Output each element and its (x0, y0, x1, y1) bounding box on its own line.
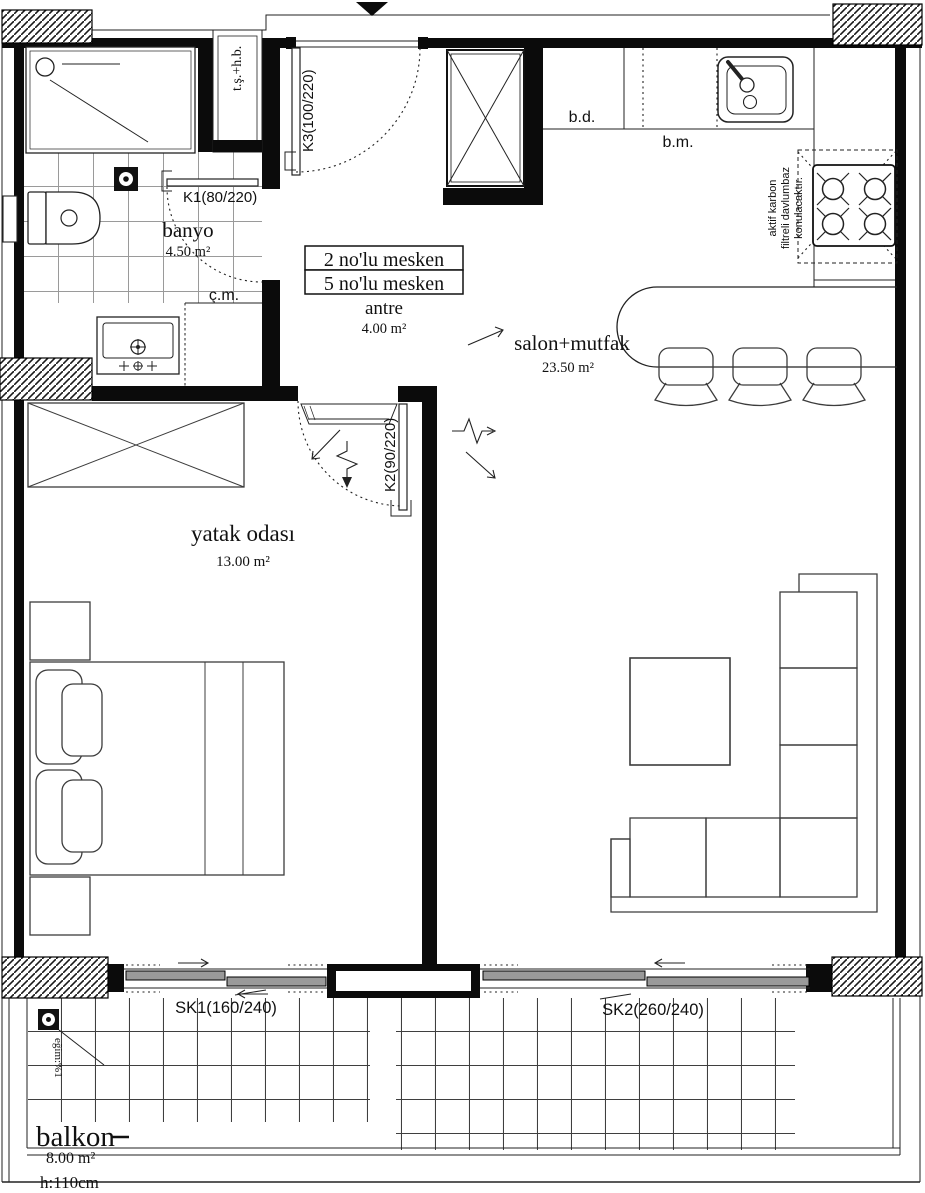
slope-note: eğim:%1 (52, 1038, 64, 1078)
kitchen-sink (718, 57, 793, 122)
floor-drain-bathroom (114, 167, 138, 191)
column-top-left (2, 10, 92, 43)
sk2-panel (483, 971, 645, 980)
column-top-right (833, 4, 922, 45)
toilet (3, 192, 100, 244)
sk1-panel (227, 977, 326, 986)
column-bottom-left (2, 957, 108, 998)
shower (26, 47, 195, 153)
nightstand-top (30, 602, 90, 660)
yatak-label: yatak odası (191, 521, 295, 546)
window-sk2-tag: SK2(260/240) (602, 1001, 704, 1019)
radiator (3, 196, 17, 242)
antre-label: antre (365, 298, 403, 319)
column-mid-left (0, 358, 92, 400)
wardrobe (28, 403, 244, 487)
dishwasher-label: b.m. (662, 134, 693, 151)
balkon-parapet-height: h:110cm (40, 1173, 99, 1192)
door-k2-leaf (399, 404, 407, 510)
door-k1-tag: K1(80/220) (183, 189, 257, 206)
door-k2-tag: K2(90/220) (382, 418, 399, 492)
banyo-label: banyo (162, 218, 213, 242)
yatak-area: 13.00 m² (216, 554, 270, 570)
sk1-panel (126, 971, 225, 980)
floor-plan: 2 no'lu mesken 5 no'lu mesken antre 4.00… (0, 0, 925, 1193)
door-k3-tag: K3(100/220) (300, 69, 317, 152)
column-bottom-right (832, 957, 922, 996)
unit-label-2: 5 no'lu mesken (324, 273, 444, 295)
antre-area: 4.00 m² (362, 321, 407, 337)
ventilation-shaft (447, 50, 524, 186)
shaft-niche-label: t.ş.+h.b. (230, 46, 245, 91)
unit-label-1: 2 no'lu mesken (324, 249, 444, 271)
pillow (62, 780, 102, 852)
hood-note-line3: konulacaktır. (793, 177, 805, 239)
door-k1-leaf (167, 179, 258, 186)
pillow (62, 684, 102, 756)
double-bed (30, 662, 284, 875)
salon-area: 23.50 m² (542, 360, 595, 376)
washing-machine-label: ç.m. (209, 287, 239, 304)
floor-plan-drawing: 2 no'lu mesken 5 no'lu mesken antre 4.00… (0, 0, 925, 1193)
banyo-area: 4.50 m² (166, 244, 211, 260)
hood-note-line1: aktif karbon (767, 180, 779, 237)
balkon-label: balkon (36, 1121, 115, 1153)
fridge-label: b.d. (569, 109, 596, 126)
nightstand-bottom (30, 877, 90, 935)
window-sk1-tag: SK1(160/240) (175, 999, 277, 1017)
sk2-panel (647, 977, 809, 986)
hood-note-line2: filtreli davlumbaz (780, 167, 792, 249)
salon-label: salon+mutfak (514, 331, 630, 355)
balcony-tile-floor-center (396, 998, 795, 1150)
balkon-area: 8.00 m² (46, 1150, 95, 1167)
door-k3-leaf (292, 48, 300, 175)
